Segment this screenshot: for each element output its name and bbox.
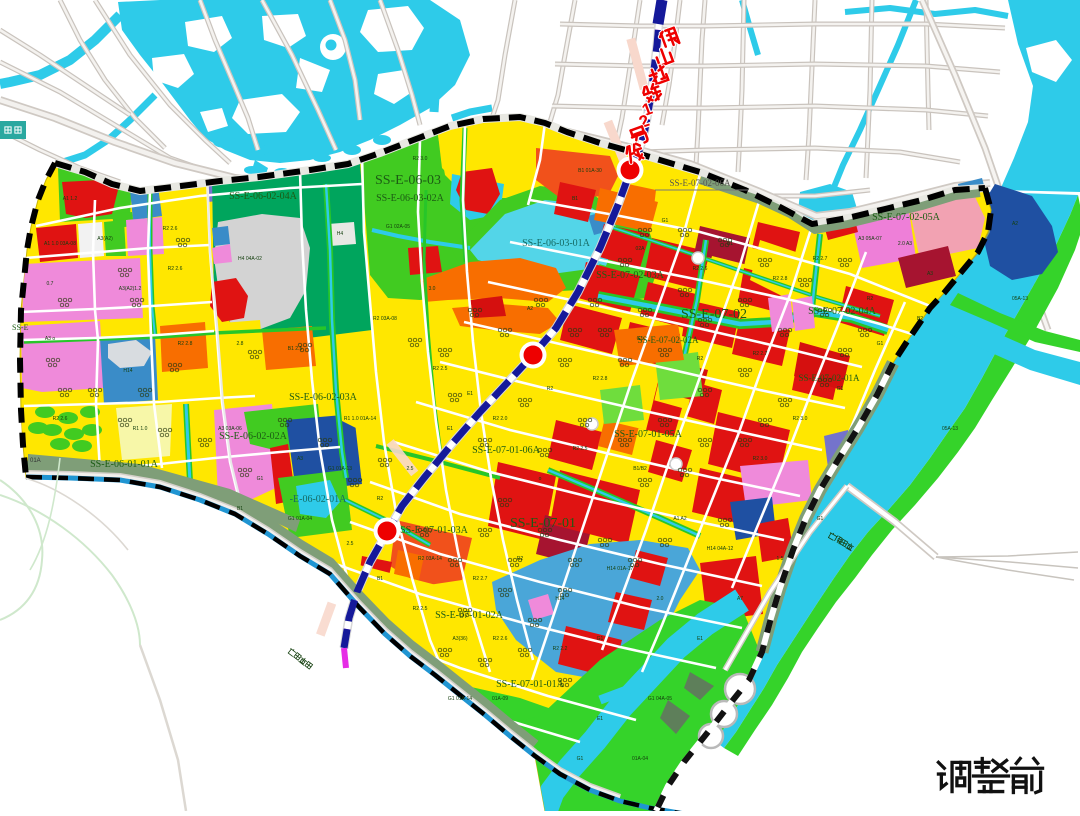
svg-text:SS-E-06-03-02A: SS-E-06-03-02A [376, 193, 445, 204]
svg-text:R2 2.5: R2 2.5 [433, 366, 448, 372]
svg-text:SS-E-07-02-02A: SS-E-07-02-02A [638, 335, 699, 345]
svg-text:A1 1.0 03A-08: A1 1.0 03A-08 [44, 241, 76, 247]
svg-text:R2 3.0: R2 3.0 [413, 156, 428, 162]
svg-text:G1: G1 [662, 218, 669, 224]
svg-text:E1: E1 [467, 391, 473, 397]
svg-text:A3: A3 [297, 456, 303, 462]
svg-text:SS-E-07-02-03A: SS-E-07-02-03A [596, 270, 665, 281]
svg-text:B1 01A-30: B1 01A-30 [578, 168, 602, 174]
svg-text:SS-E-07-01-03A: SS-E-07-01-03A [400, 525, 469, 536]
svg-text:A3: A3 [927, 271, 933, 277]
svg-text:R2 2.8: R2 2.8 [593, 376, 608, 382]
svg-text:G1: G1 [597, 636, 604, 642]
svg-text:G1: G1 [877, 341, 884, 347]
svg-text:B1: B1 [377, 576, 383, 582]
svg-text:B1: B1 [572, 196, 578, 202]
svg-text:A2: A2 [1012, 221, 1018, 227]
svg-text:A3(A2)1.2: A3(A2)1.2 [119, 286, 142, 292]
svg-text:G1: G1 [837, 386, 844, 392]
svg-text:H4: H4 [337, 231, 344, 237]
svg-text:H14 04A-12: H14 04A-12 [707, 546, 734, 552]
svg-text:R2 2.0: R2 2.0 [493, 416, 508, 422]
svg-text:G1: G1 [817, 516, 824, 522]
svg-text:02A: 02A [636, 246, 646, 252]
svg-text:R2 2.7: R2 2.7 [473, 576, 488, 582]
svg-text:A3 o: A3 o [45, 336, 56, 342]
svg-text:R2 2.2: R2 2.2 [553, 646, 568, 652]
svg-text:01A: 01A [30, 458, 41, 464]
svg-text:2.0 A3: 2.0 A3 [898, 241, 912, 247]
svg-text:05A-13: 05A-13 [942, 426, 958, 432]
svg-text:G1: G1 [637, 336, 644, 342]
svg-text:SS-E-06-02-02A: SS-E-06-02-02A [219, 431, 288, 442]
svg-text:R2 2.7: R2 2.7 [813, 256, 828, 262]
svg-text:2.5: 2.5 [347, 541, 354, 547]
svg-text:05A-13: 05A-13 [1012, 296, 1028, 302]
svg-text:SS-E-07-02: SS-E-07-02 [681, 307, 747, 322]
svg-text:R2: R2 [517, 556, 524, 562]
svg-text:R2 2.6: R2 2.6 [53, 416, 68, 422]
svg-text:0.7: 0.7 [47, 281, 54, 287]
svg-text:G1 01A-04: G1 01A-04 [288, 516, 312, 522]
svg-text:1.5: 1.5 [777, 556, 784, 562]
svg-text:R2: R2 [697, 356, 704, 362]
svg-text:01A-09: 01A-09 [492, 696, 508, 702]
svg-text:R2 2.8: R2 2.8 [773, 276, 788, 282]
svg-text:R1 1.0: R1 1.0 [133, 426, 148, 432]
svg-text:SS-E-07-02-04A: SS-E-07-02-04A [808, 306, 877, 317]
svg-text:SS-E-06-03-01A: SS-E-06-03-01A [522, 238, 591, 249]
svg-text:R2 2.6: R2 2.6 [163, 226, 178, 232]
svg-text:G1: G1 [257, 476, 264, 482]
svg-text:R2 03A-14: R2 03A-14 [418, 556, 442, 562]
svg-text:R2 3.0: R2 3.0 [793, 416, 808, 422]
svg-text:H14: H14 [123, 368, 132, 374]
svg-text:G1 01A-14: G1 01A-14 [448, 696, 472, 702]
svg-text:2.8: 2.8 [237, 341, 244, 347]
svg-text:R2: R2 [377, 496, 384, 502]
svg-text:B2: B2 [917, 316, 923, 322]
svg-text:H14: H14 [555, 596, 564, 602]
svg-text:A7: A7 [737, 596, 743, 602]
svg-text:R2 2.6: R2 2.6 [693, 266, 708, 272]
svg-text:01A-04: 01A-04 [632, 756, 648, 762]
svg-text:G1 02A-05: G1 02A-05 [386, 224, 410, 230]
svg-text:A3 05A-07: A3 05A-07 [858, 236, 882, 242]
svg-text:R2 2.5: R2 2.5 [573, 446, 588, 452]
svg-text:A3 03A-06: A3 03A-06 [218, 426, 242, 432]
svg-text:B1: B1 [237, 506, 243, 512]
svg-text:o: o [539, 476, 542, 482]
svg-text:R2 2.8: R2 2.8 [178, 341, 193, 347]
svg-text:A1 1.2: A1 1.2 [63, 196, 78, 202]
svg-text:SS-E-07-02-05A: SS-E-07-02-05A [872, 212, 941, 223]
svg-text:SS-E-07-01-01A: SS-E-07-01-01A [496, 679, 565, 690]
svg-text:SS-E-06-03: SS-E-06-03 [375, 173, 441, 188]
svg-text:SS-E-07-01: SS-E-07-01 [510, 516, 576, 531]
svg-text:R1 1.0 01A-14: R1 1.0 01A-14 [344, 416, 376, 422]
svg-text:SS-E-06-02-04A: SS-E-06-02-04A [229, 191, 298, 202]
svg-text:A3(A2): A3(A2) [97, 236, 113, 242]
svg-text:R2 2.5: R2 2.5 [413, 606, 428, 612]
svg-text:E1: E1 [597, 716, 603, 722]
svg-text:R2 03A-08: R2 03A-08 [373, 316, 397, 322]
svg-text:A1 A2: A1 A2 [673, 516, 687, 522]
svg-text:E1: E1 [697, 636, 703, 642]
svg-text:R2 2.6: R2 2.6 [168, 266, 183, 272]
svg-text:B1/B2: B1/B2 [633, 466, 647, 472]
svg-text:R2 2.6: R2 2.6 [493, 636, 508, 642]
svg-text:R2: R2 [547, 386, 554, 392]
svg-text:-E-06-02-01A: -E-06-02-01A [290, 494, 347, 505]
svg-text:R2 3.0: R2 3.0 [753, 456, 768, 462]
svg-text:SS-E-07-02-06A: SS-E-07-02-06A [670, 178, 731, 188]
svg-text:G1 04A-05: G1 04A-05 [648, 696, 672, 702]
svg-text:R2: R2 [867, 296, 874, 302]
svg-text:H14 01A-17: H14 01A-17 [607, 566, 634, 572]
svg-text:SS-E: SS-E [12, 323, 29, 332]
svg-text:SS-E-06-02-03A: SS-E-06-02-03A [289, 392, 358, 403]
svg-text:2.0: 2.0 [657, 596, 664, 602]
svg-text:G1 01A-13: G1 01A-13 [328, 466, 352, 472]
svg-text:3.0: 3.0 [429, 286, 436, 292]
svg-text:2.5: 2.5 [407, 466, 414, 472]
svg-text:H4 04A-02: H4 04A-02 [238, 256, 262, 262]
svg-text:A3(36): A3(36) [452, 636, 467, 642]
svg-text:SS-E-06-01-01A: SS-E-06-01-01A [90, 459, 159, 470]
svg-text:G1: G1 [577, 756, 584, 762]
svg-text:E1: E1 [447, 426, 453, 432]
svg-text:R2 2.7: R2 2.7 [753, 351, 768, 357]
svg-text:A2: A2 [527, 306, 533, 312]
